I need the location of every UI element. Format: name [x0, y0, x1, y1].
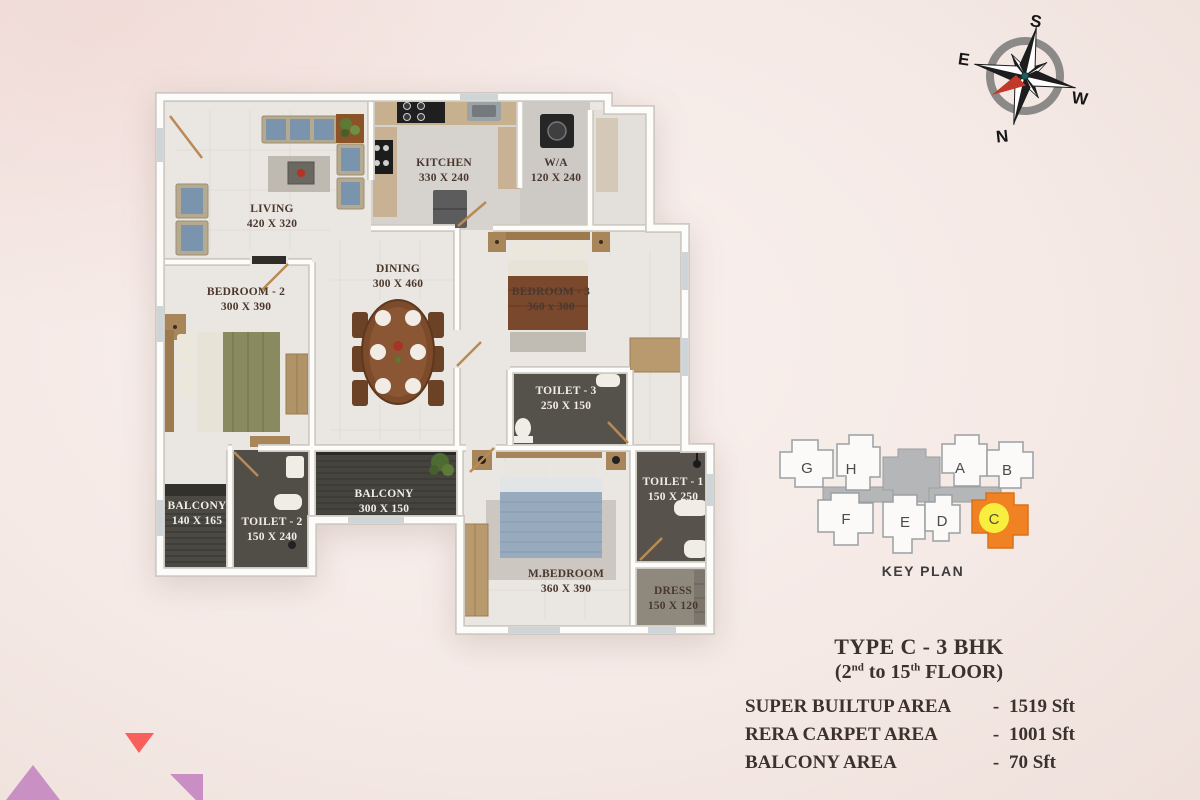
keyplan-letter-c: C — [989, 511, 1000, 528]
living-plant-icon — [336, 114, 364, 143]
decor-triangle-red — [125, 733, 154, 753]
unit-info: TYPE C - 3 BHK (2nd to 15th FLOOR) SUPER… — [745, 634, 1093, 777]
decor-triangle-purple-large — [6, 765, 60, 800]
room-label-balcony-center: BALCONY 300 X 150 — [355, 487, 414, 517]
washing-machine-icon — [540, 114, 574, 148]
room-label-bedroom3: BEDROOM - 3 360 x 300 — [512, 285, 590, 315]
room-label-dress: DRESS 150 X 120 — [648, 584, 698, 614]
room-label-bedroom2: BEDROOM - 2 300 X 390 — [207, 285, 285, 315]
area-row-rera-carpet: RERA CARPET AREA - 1001 Sft — [745, 721, 1093, 749]
room-label-living: LIVING 420 X 320 — [247, 202, 297, 232]
compass-label-east: E — [957, 49, 971, 69]
room-label-toilet3: TOILET - 3 250 X 150 — [535, 384, 596, 414]
room-label-dining: DINING 300 X 460 — [373, 262, 423, 292]
decor-triangle-purple-small — [170, 774, 203, 800]
keyplan-letter-a: A — [955, 460, 965, 477]
keyplan-letter-e: E — [900, 514, 910, 531]
brochure-page: LIVING 420 X 320 KITCHEN 330 X 240 W/A 1… — [0, 0, 1200, 800]
compass-label-west: W — [1071, 88, 1090, 109]
compass-label-south: S — [1029, 11, 1043, 32]
compass-star — [963, 16, 1087, 137]
keyplan-letter-g: G — [801, 460, 813, 477]
unit-type-title: TYPE C - 3 BHK — [745, 634, 1093, 660]
area-row-balcony: BALCONY AREA - 70 Sft — [745, 749, 1093, 777]
room-label-wa: W/A 120 X 240 — [531, 156, 581, 186]
keyplan-unit-h — [837, 435, 880, 490]
floor-range: (2nd to 15th FLOOR) — [745, 661, 1093, 684]
coffee-table-icon — [268, 156, 330, 192]
room-label-balcony-left: BALCONY 140 X 165 — [168, 499, 227, 529]
keyplan: G H A B F E D C KEY PLAN — [770, 428, 1040, 580]
compass-label-north: N — [995, 126, 1009, 146]
keyplan-letter-f: F — [841, 511, 850, 528]
room-label-kitchen: KITCHEN 330 X 240 — [416, 156, 472, 186]
keyplan-letter-b: B — [1002, 462, 1012, 479]
compass-rose: S E W N — [950, 5, 1100, 150]
room-label-mbedroom: M.BEDROOM 360 X 390 — [528, 567, 604, 597]
area-row-super-builtup: SUPER BUILTUP AREA - 1519 Sft — [745, 693, 1093, 721]
keyplan-title: KEY PLAN — [770, 562, 1040, 580]
area-table: SUPER BUILTUP AREA - 1519 Sft RERA CARPE… — [745, 693, 1093, 777]
room-label-toilet1: TOILET - 1 150 X 250 — [642, 475, 703, 505]
room-label-toilet2: TOILET - 2 150 X 240 — [241, 515, 302, 545]
keyplan-letter-d: D — [937, 513, 948, 530]
keyplan-diagram: G H A B F E D C — [770, 428, 1040, 554]
dining-table-icon — [352, 300, 444, 406]
keyplan-letter-h: H — [846, 461, 857, 478]
